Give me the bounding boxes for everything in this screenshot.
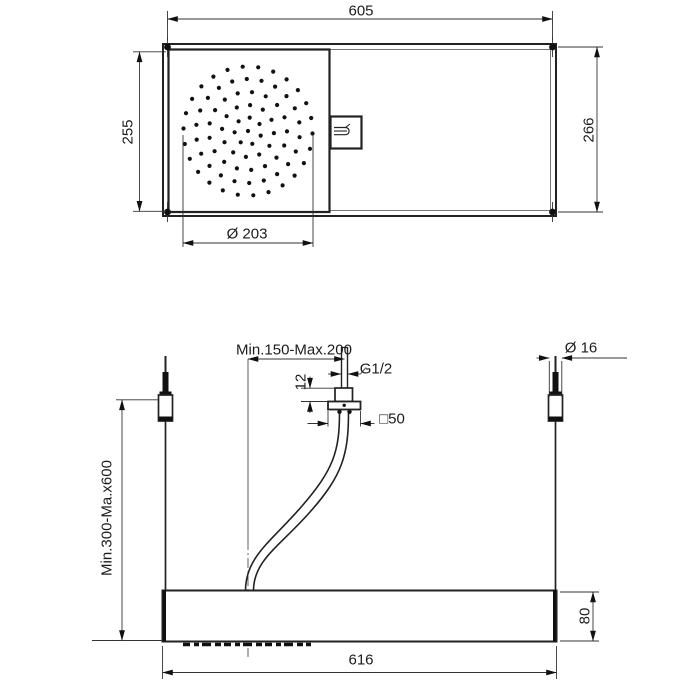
dim-label-top-width: 605 (348, 3, 373, 20)
dim-label-thread-exposure: 12 (293, 374, 310, 391)
top-view (133, 11, 603, 247)
dim-label-escutcheon: □50 (379, 411, 405, 428)
waterfall-outlet (331, 117, 362, 149)
shower-technical-drawing: 605 255 266 Ø 203 Min.150-Max.200 G1/2 1… (0, 0, 700, 700)
dim-label-thread: G1/2 (360, 361, 393, 378)
hanging-rod-right (549, 356, 563, 590)
dim-label-spray-diameter: Ø 203 (227, 226, 268, 243)
dim-label-rod-diameter: Ø 16 (565, 340, 598, 357)
dim-label-panel-height: 266 (581, 117, 598, 142)
dim-lines-head-height (133, 52, 166, 212)
dim-label-inlet-offset: Min.150-Max.200 (236, 342, 352, 359)
dim-label-head-height: 255 (120, 119, 137, 144)
front-view (92, 347, 627, 679)
panel-side-view (163, 590, 557, 645)
dim-label-hanging-range: Min.300-Ma.x600 (99, 460, 116, 576)
thread-adapter (335, 388, 353, 402)
hanging-rod-left (159, 356, 173, 590)
dim-label-bottom-width: 616 (348, 652, 373, 669)
supply-hose (246, 413, 349, 590)
dim-lines-rod-diameter (537, 358, 628, 397)
dim-label-panel-thickness: 80 (577, 608, 594, 625)
